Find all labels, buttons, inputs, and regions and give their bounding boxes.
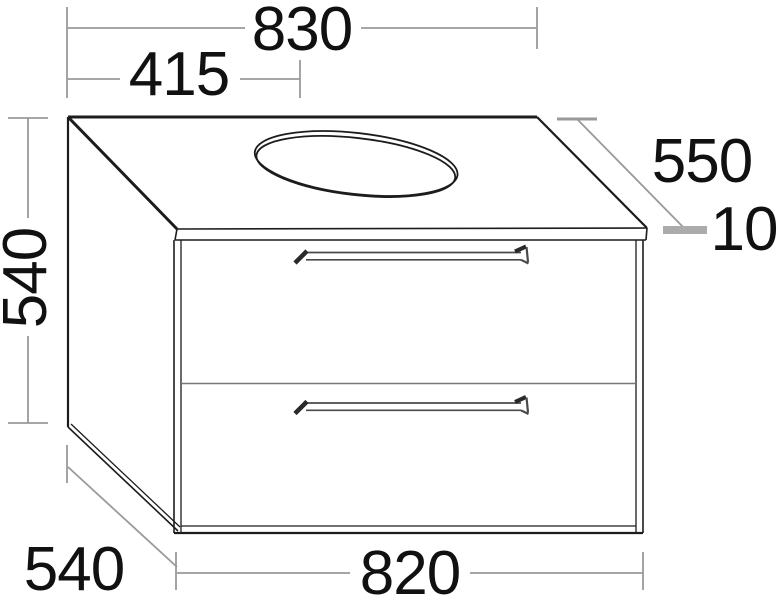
- countertop-front-edge: [177, 228, 647, 229]
- vanity-cabinet-outline: [68, 117, 647, 533]
- handle-left-post: [295, 251, 307, 263]
- dimension-labels: 830 415 540 550 10 540 820: [0, 0, 777, 600]
- basin-cutout: [251, 122, 461, 207]
- handle-left-post: [295, 402, 307, 414]
- dim-label-415: 415: [129, 40, 229, 109]
- dimension-lines: [8, 7, 686, 590]
- dim-label-830: 830: [252, 0, 352, 64]
- countertop-left-cap: [175, 229, 177, 240]
- dim-label-820: 820: [360, 539, 460, 600]
- side-panel-bottom-edge-outer: [68, 427, 178, 531]
- handle-right-post: [515, 247, 526, 252]
- countertop-right-cap: [646, 228, 647, 240]
- dim-label-540-depth: 540: [24, 535, 124, 600]
- countertop-left-edge: [68, 117, 177, 229]
- dim-label-540-height: 540: [0, 228, 60, 328]
- dim-label-10: 10: [711, 195, 778, 264]
- drawer-handle-top: [295, 247, 529, 264]
- handle-right-drop: [527, 247, 529, 262]
- technical-drawing-vanity-unit: 830 415 540 550 10 540 820: [0, 0, 778, 600]
- side-panel-bottom-edge-inner: [71, 424, 180, 527]
- drawing-canvas: 830 415 540 550 10 540 820: [0, 0, 778, 600]
- drawer-handle-bottom: [295, 397, 529, 414]
- handle-right-post: [515, 397, 526, 402]
- dim-label-550: 550: [652, 127, 752, 196]
- handle-right-drop: [527, 398, 529, 413]
- dim-thick-tick-10: [663, 226, 707, 234]
